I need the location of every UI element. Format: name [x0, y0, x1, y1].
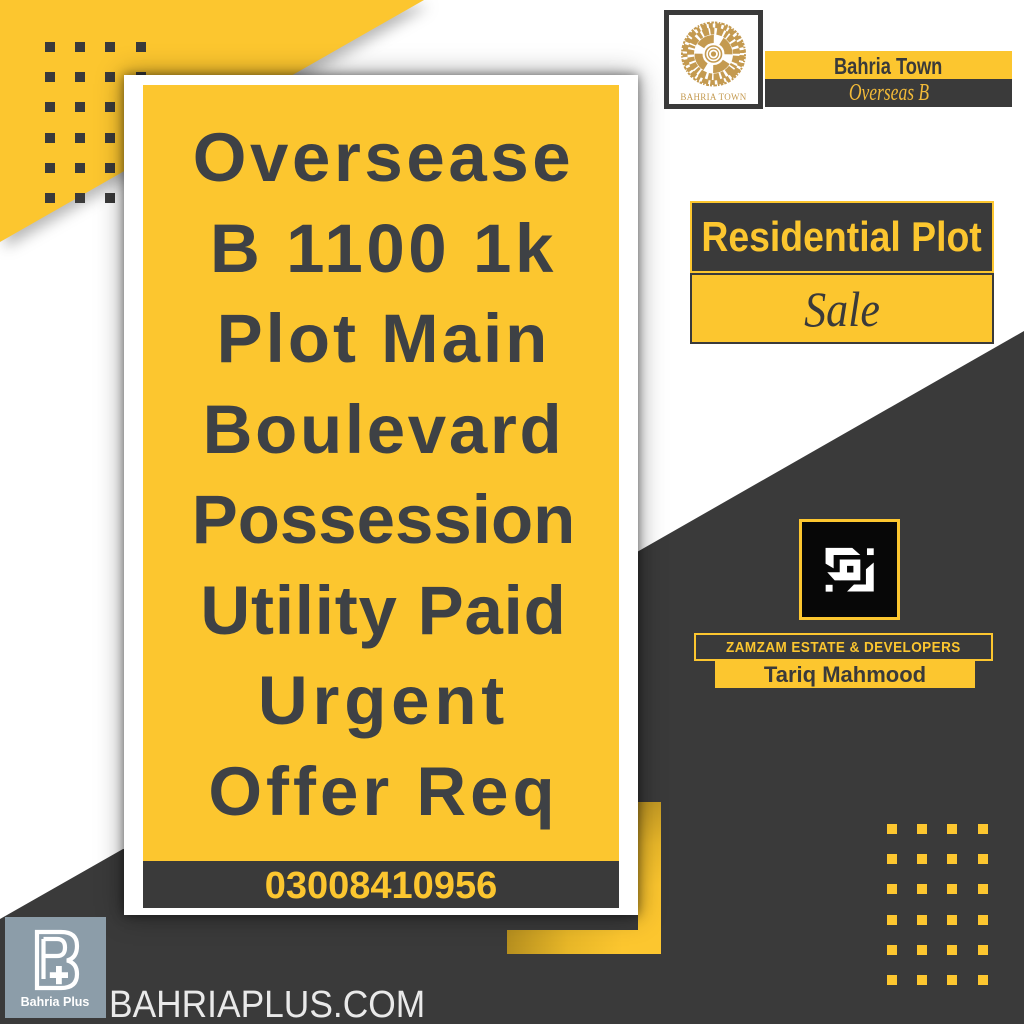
svg-text:Bahria Plus: Bahria Plus	[21, 995, 90, 1009]
